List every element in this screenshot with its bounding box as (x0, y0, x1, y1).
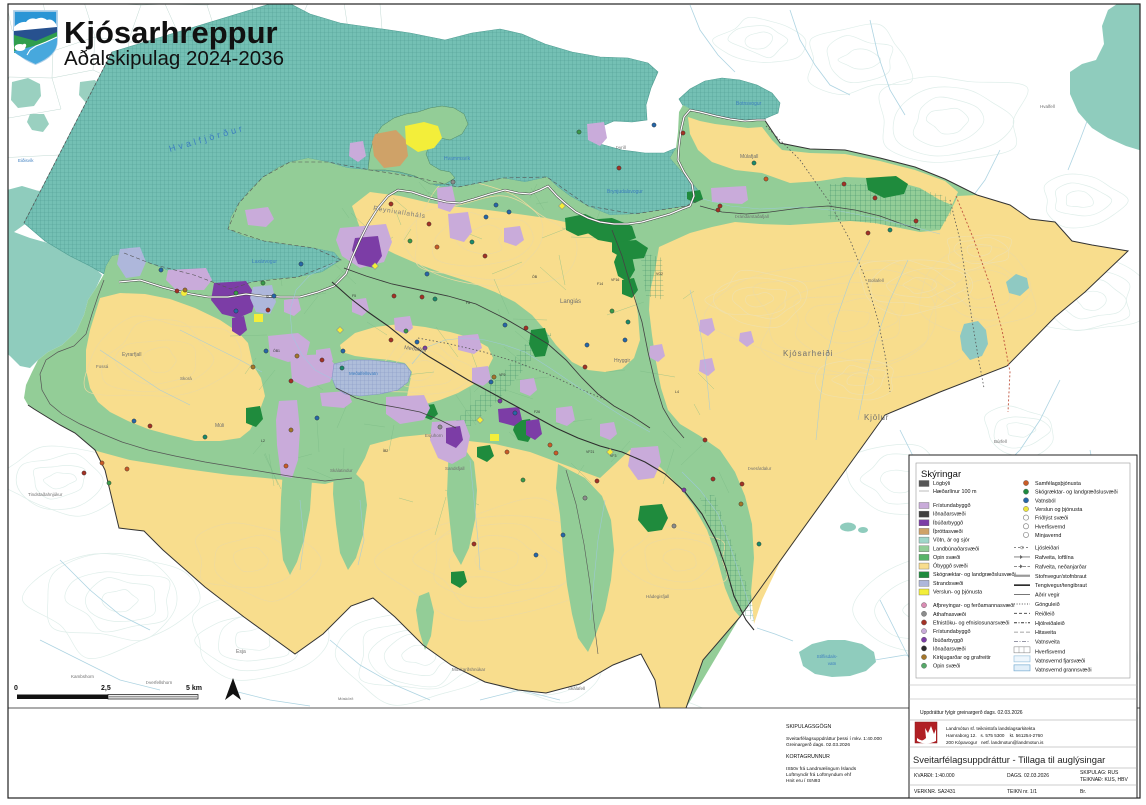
svg-text:Hamraborg 12. s. 575 5300: Hamraborg 12. s. 575 5300 kt. 561254-276… (946, 733, 1043, 738)
svg-text:VERKNR. SA2431: VERKNR. SA2431 (914, 789, 956, 795)
svg-text:Múlafjall: Múlafjall (740, 154, 758, 160)
svg-text:Móskörð: Móskörð (338, 696, 354, 701)
svg-text:Landmótun sf. teiknistofa land: Landmótun sf. teiknistofa landslagsarkit… (946, 726, 1036, 731)
svg-text:Minjavernd: Minjavernd (1035, 533, 1061, 539)
svg-text:5 km: 5 km (186, 685, 202, 692)
svg-text:Gönguleið: Gönguleið (1035, 601, 1060, 608)
svg-text:SL3: SL3 (266, 295, 272, 299)
svg-text:Vatnsból: Vatnsból (1035, 498, 1056, 504)
svg-text:Uppdráttur fylgir greinargerð: Uppdráttur fylgir greinargerð dags. 02.0… (920, 709, 1023, 716)
svg-text:Tengivegur/tengibraut: Tengivegur/tengibraut (1035, 583, 1087, 589)
svg-text:VG2: VG2 (656, 272, 663, 276)
svg-text:Kirkjugarðar og grafreitir: Kirkjugarðar og grafreitir (933, 654, 991, 661)
svg-text:Hjólreiðaleið: Hjólreiðaleið (1035, 620, 1065, 627)
svg-text:KVARÐI: 1:40.000: KVARÐI: 1:40.000 (914, 773, 955, 779)
svg-text:TEIKNAÐ: KUS, HBV: TEIKNAÐ: KUS, HBV (1080, 777, 1128, 783)
svg-text:Esja: Esja (236, 649, 246, 655)
svg-text:Laxárvogur: Laxárvogur (252, 259, 277, 265)
svg-text:Langiás: Langiás (560, 299, 581, 305)
svg-text:Hádegisfjall: Hádegisfjall (646, 594, 669, 599)
svg-text:Hæðarlínur 100 m: Hæðarlínur 100 m (933, 488, 977, 495)
svg-text:Hvalfell: Hvalfell (1040, 104, 1055, 109)
svg-text:Skógræktar- og landgræðslusvæð: Skógræktar- og landgræðslusvæði (933, 571, 1016, 578)
svg-text:Vatnsveita: Vatnsveita (1035, 640, 1060, 646)
svg-text:0: 0 (14, 685, 18, 692)
svg-text:Múli: Múli (215, 423, 224, 429)
svg-text:Skógræktar- og landgræðslusvæð: Skógræktar- og landgræðslusvæði (1035, 489, 1118, 496)
svg-text:Óbyggð svæði: Óbyggð svæði (933, 563, 968, 570)
svg-text:Frístundabyggð: Frístundabyggð (933, 502, 970, 509)
svg-text:Vötn, ár og sjór: Vötn, ár og sjór (933, 538, 970, 544)
svg-text:Frístundabyggð: Frístundabyggð (933, 628, 970, 635)
svg-text:Skorá: Skorá (180, 376, 192, 381)
svg-text:Botnsvogur: Botnsvogur (736, 101, 762, 107)
svg-text:ÓB1: ÓB1 (273, 348, 280, 353)
svg-text:Strandsvæði: Strandsvæði (933, 580, 963, 587)
svg-text:vatn: vatn (828, 661, 837, 666)
svg-text:Verslun- og þjónusta: Verslun- og þjónusta (933, 590, 982, 596)
svg-text:Lögbýli: Lögbýli (933, 481, 950, 487)
svg-text:ÍB2: ÍB2 (383, 449, 388, 453)
svg-text:Þverárdalur: Þverárdalur (748, 466, 772, 471)
svg-text:KORTAGRUNNUR: KORTAGRUNNUR (786, 754, 830, 760)
svg-text:Iðnaðarsvæði: Iðnaðarsvæði (933, 645, 966, 652)
svg-text:Búrfell: Búrfell (994, 439, 1007, 444)
svg-text:Esjuhorn: Esjuhorn (425, 433, 443, 438)
svg-text:Stofnvegur/stofnbraut: Stofnvegur/stofnbraut (1035, 574, 1087, 580)
svg-text:Ljósleiðari: Ljósleiðari (1035, 545, 1059, 552)
svg-text:Greinargerð dags. 02.03.2026: Greinargerð dags. 02.03.2026 (786, 741, 850, 748)
svg-text:TEIKN nr. 1/1: TEIKN nr. 1/1 (1007, 789, 1037, 795)
svg-text:Hverfisvernd: Hverfisvernd (1035, 524, 1065, 530)
svg-text:Skálafell: Skálafell (568, 686, 585, 691)
svg-text:DAGS. 02.03.2026: DAGS. 02.03.2026 (1007, 773, 1049, 779)
svg-text:Hitaveita: Hitaveita (1035, 630, 1056, 636)
svg-text:VF9: VF9 (499, 373, 505, 377)
svg-text:Eiðisvík: Eiðisvík (18, 157, 34, 163)
svg-text:VF3: VF3 (610, 454, 616, 458)
svg-text:Hverfisvernd: Hverfisvernd (1035, 649, 1065, 655)
svg-text:Opin svæði: Opin svæði (933, 554, 960, 561)
svg-text:Íbúðarbyggð: Íbúðarbyggð (933, 637, 963, 644)
svg-text:SKIPULAG: RUS: SKIPULAG: RUS (1080, 770, 1119, 776)
svg-text:Eyrarfjall: Eyrarfjall (122, 352, 141, 358)
svg-text:Loftmyndir frá Loftmyndum ehf: Loftmyndir frá Loftmyndum ehf (786, 772, 852, 778)
svg-text:Þverfellshorn: Þverfellshorn (146, 680, 173, 685)
svg-text:Sandsfjall: Sandsfjall (445, 466, 465, 471)
svg-text:Meðalfellsvatn: Meðalfellsvatn (349, 370, 378, 376)
svg-text:Skálatindur: Skálatindur (330, 468, 353, 473)
svg-text:Kjósarhreppur: Kjósarhreppur (64, 15, 278, 50)
svg-text:Hnit eru í ISN93: Hnit eru í ISN93 (786, 778, 820, 784)
svg-text:Stíflisdals-: Stíflisdals- (817, 654, 838, 659)
svg-text:Kambshorn: Kambshorn (71, 674, 95, 679)
svg-text:F8: F8 (466, 301, 470, 305)
svg-text:Reiðleið: Reiðleið (1035, 610, 1054, 617)
svg-text:Þyrill: Þyrill (616, 145, 626, 150)
svg-text:200 Kópavogur netf. landmotu: 200 Kópavogur netf. landmotun@landmotun.… (946, 740, 1044, 745)
svg-text:F14: F14 (597, 282, 603, 286)
svg-text:Hryggir: Hryggir (614, 358, 630, 364)
svg-text:Tindstaðahnjúkur: Tindstaðahnjúkur (28, 491, 63, 497)
svg-text:Aðrir vegir: Aðrir vegir (1035, 592, 1060, 599)
svg-text:Opin svæði: Opin svæði (933, 663, 960, 670)
svg-text:Íbúðarbyggð: Íbúðarbyggð (933, 519, 963, 526)
svg-text:Br.: Br. (1080, 789, 1086, 795)
svg-text:Rafveita, neðanjarðar: Rafveita, neðanjarðar (1035, 563, 1087, 570)
svg-text:F5: F5 (352, 294, 356, 298)
svg-text:SKIPULAGSGÖGN: SKIPULAGSGÖGN (786, 723, 832, 730)
svg-text:F26: F26 (534, 410, 540, 414)
svg-text:Athafnasvæði: Athafnasvæði (933, 611, 966, 618)
svg-text:Sveitarfélagsuppdráttur - Till: Sveitarfélagsuppdráttur - Tillaga til au… (913, 754, 1105, 765)
svg-text:Fossá: Fossá (96, 364, 109, 369)
svg-text:Rafveita, loftlína: Rafveita, loftlína (1035, 555, 1074, 561)
svg-text:Aðalskipulag 2024-2036: Aðalskipulag 2024-2036 (64, 47, 284, 70)
svg-text:Kjölur: Kjölur (864, 413, 889, 422)
svg-text:Iðnaðarsvæði: Iðnaðarsvæði (933, 511, 966, 518)
svg-text:Samfélagsþjónusta: Samfélagsþjónusta (1035, 481, 1081, 487)
svg-text:L2: L2 (261, 439, 265, 443)
svg-text:Bollafell: Bollafell (868, 278, 884, 283)
svg-text:IS50v frá Landmælingum Íslands: IS50v frá Landmælingum Íslands (786, 765, 857, 772)
svg-text:2,5: 2,5 (101, 685, 111, 692)
svg-text:L4: L4 (675, 390, 679, 394)
svg-text:VF21: VF21 (586, 450, 594, 454)
svg-text:VF16: VF16 (611, 278, 619, 282)
svg-text:Skýringar: Skýringar (921, 469, 961, 480)
svg-text:Brynjudalsvogur: Brynjudalsvogur (607, 189, 643, 195)
svg-text:Móskarðshnúkar: Móskarðshnúkar (452, 666, 486, 672)
svg-text:Sveitarfélagsuppdráttur þessi: Sveitarfélagsuppdráttur þessi í mkv. 1:4… (786, 736, 882, 742)
svg-text:Verslun og þjónusta: Verslun og þjónusta (1035, 507, 1082, 513)
svg-text:ÓB: ÓB (532, 274, 538, 279)
svg-text:Vatnsvernd fjarsvæði: Vatnsvernd fjarsvæði (1035, 657, 1085, 664)
svg-text:Vatnsvernd grannsvæði: Vatnsvernd grannsvæði (1035, 666, 1092, 673)
svg-text:Þrándarstaðafjall: Þrándarstaðafjall (735, 213, 769, 219)
svg-text:Kjósarheiði: Kjósarheiði (783, 349, 834, 358)
svg-text:Friðlýst svæði: Friðlýst svæði (1035, 515, 1068, 522)
svg-text:Afþreyingar- og ferðamannasvæð: Afþreyingar- og ferðamannasvæði (933, 602, 1015, 609)
svg-text:Landbúnaðarsvæði: Landbúnaðarsvæði (933, 545, 979, 552)
svg-text:Efnistöku- og efnislosunarsvæð: Efnistöku- og efnislosunarsvæði (933, 619, 1009, 626)
svg-text:Hvammsvík: Hvammsvík (444, 156, 471, 162)
svg-text:Íþróttasvæði: Íþróttasvæði (933, 528, 963, 535)
